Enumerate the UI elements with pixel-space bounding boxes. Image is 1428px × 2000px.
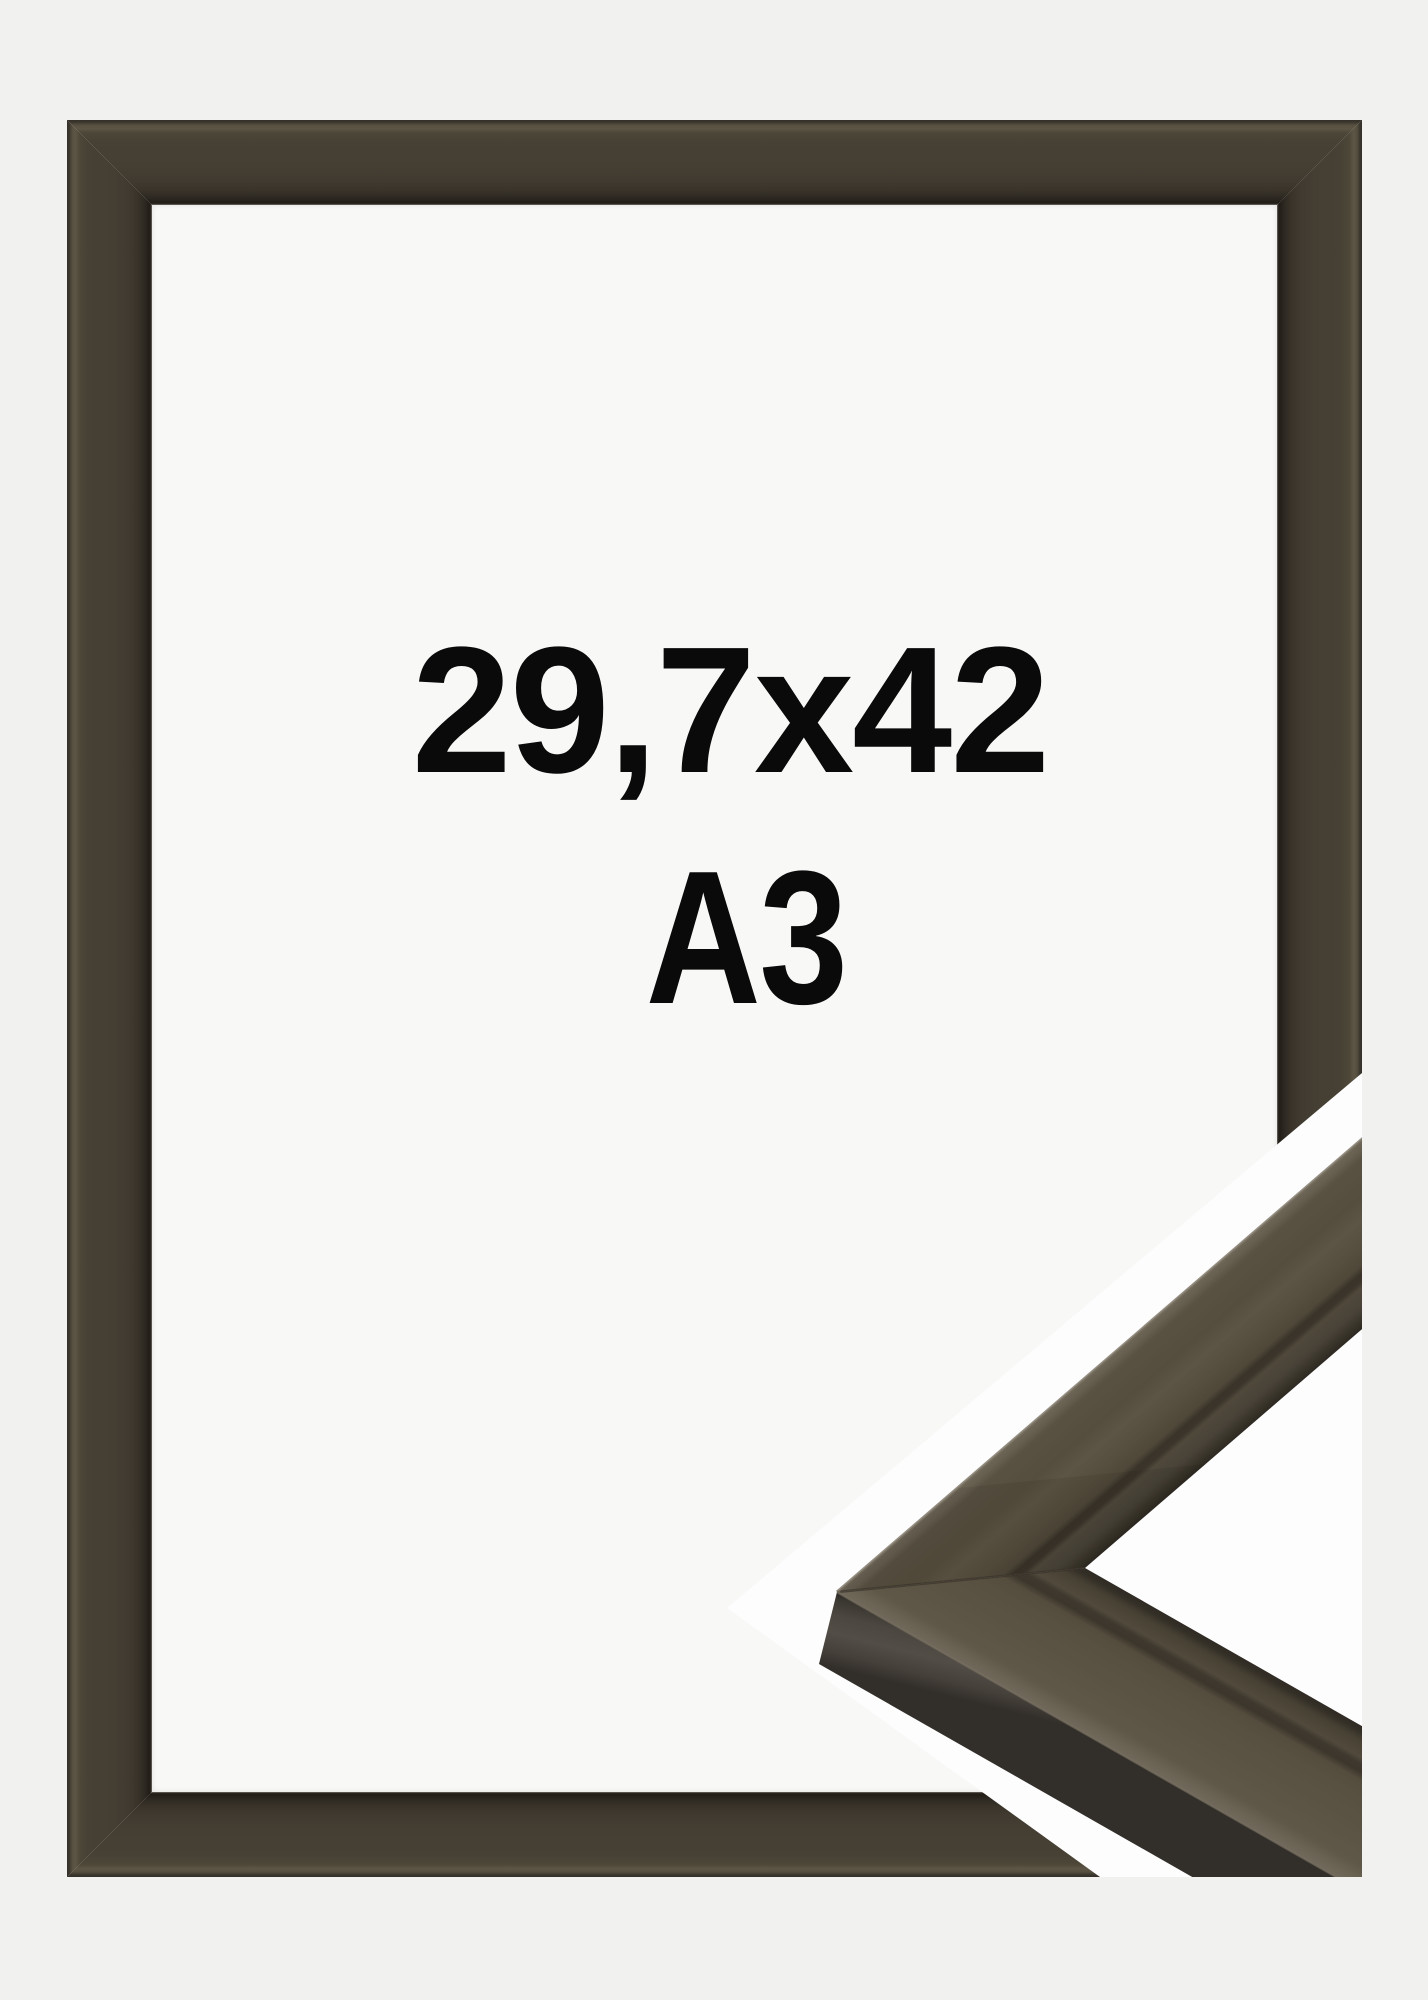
sample-lower-arm-face — [837, 1568, 1428, 1939]
corner-sample-photo — [0, 0, 1428, 2000]
product-image: 29,7x42 A3 — [0, 0, 1428, 2000]
sample-mitre-shading — [837, 1464, 1206, 1592]
